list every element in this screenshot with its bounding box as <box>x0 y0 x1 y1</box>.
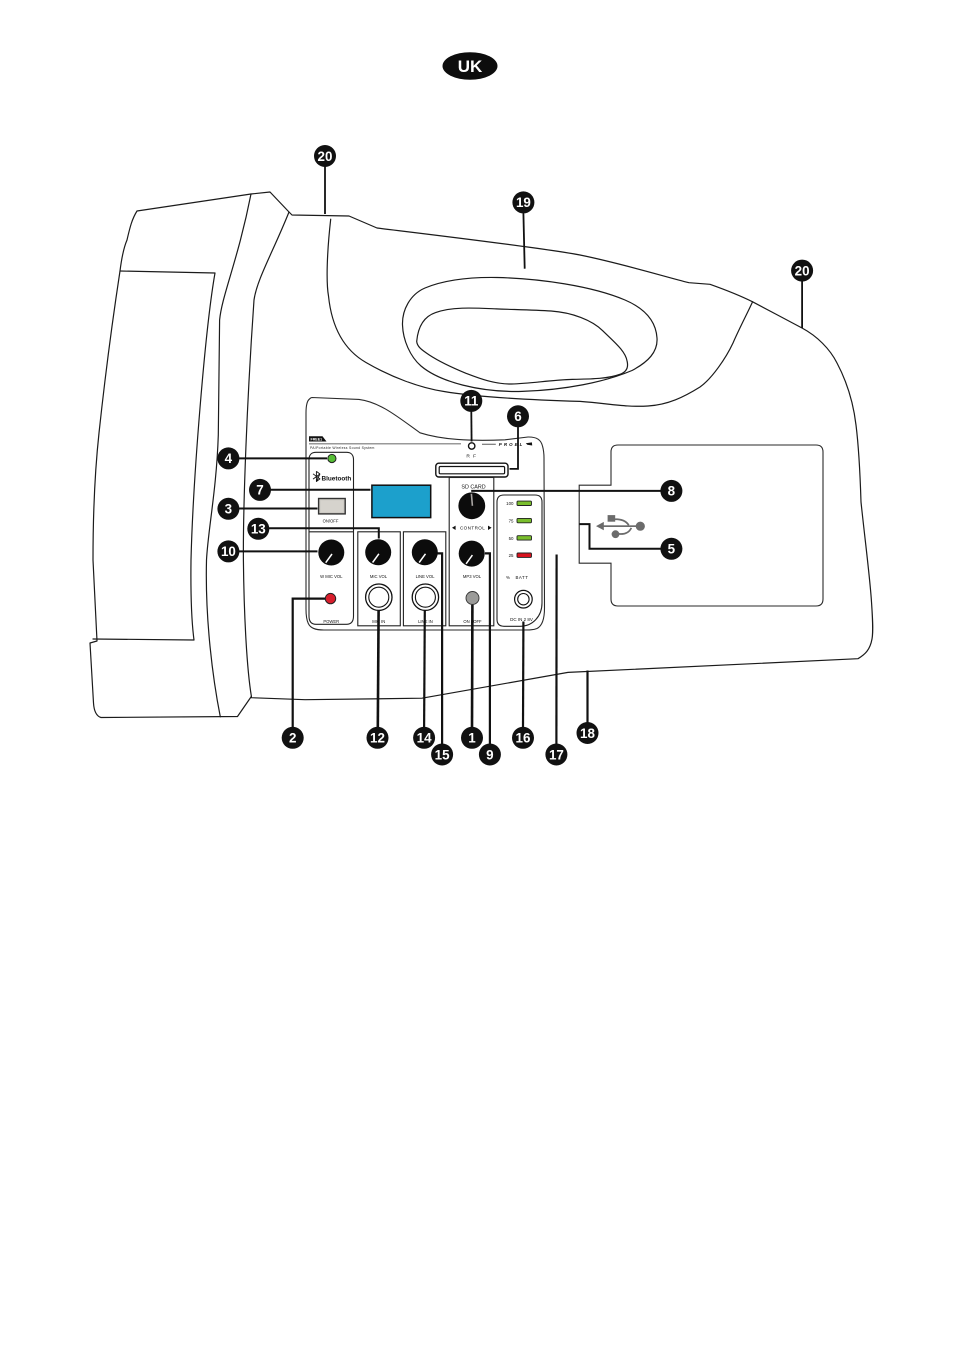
svg-text:14: 14 <box>417 731 432 746</box>
svg-text:20: 20 <box>318 149 333 164</box>
svg-text:CONTROL: CONTROL <box>460 526 485 531</box>
svg-text:3: 3 <box>225 502 232 517</box>
svg-text:8: 8 <box>668 484 676 499</box>
svg-text:75: 75 <box>509 519 514 524</box>
svg-text:9: 9 <box>486 747 493 762</box>
svg-text:W MIC VOL: W MIC VOL <box>320 574 343 579</box>
svg-text:ON/OFF: ON/OFF <box>323 518 339 523</box>
svg-text:15: 15 <box>435 747 450 762</box>
svg-text:50: 50 <box>509 536 514 541</box>
svg-text:5: 5 <box>668 542 676 557</box>
svg-text:SD CARD: SD CARD <box>461 484 485 490</box>
svg-text:PA/Portable Wireless Sound Sys: PA/Portable Wireless Sound System <box>310 446 375 450</box>
svg-text:6: 6 <box>514 409 521 424</box>
svg-text:19: 19 <box>516 195 531 210</box>
svg-text:16: 16 <box>516 731 531 746</box>
svg-text:4: 4 <box>225 451 233 466</box>
svg-text:MIC VOL: MIC VOL <box>370 574 388 579</box>
svg-text:12: 12 <box>370 731 385 746</box>
svg-text:BATT: BATT <box>516 575 529 580</box>
svg-text:13: 13 <box>251 522 266 537</box>
svg-text:7: 7 <box>256 483 263 498</box>
svg-text:FREE1: FREE1 <box>311 437 323 441</box>
svg-text:PROEL: PROEL <box>499 442 525 447</box>
svg-text:18: 18 <box>580 726 595 741</box>
svg-text:Bluetooth: Bluetooth <box>322 475 352 482</box>
svg-text:UK: UK <box>458 57 483 76</box>
svg-text:100: 100 <box>506 501 514 506</box>
svg-text:LINE VOL: LINE VOL <box>416 574 436 579</box>
svg-text:11: 11 <box>464 394 479 409</box>
svg-text:1: 1 <box>468 731 476 746</box>
svg-text:MP3 VOL: MP3 VOL <box>463 574 482 579</box>
svg-text:20: 20 <box>795 263 810 278</box>
svg-text:POWER: POWER <box>323 619 339 624</box>
svg-text:10: 10 <box>221 544 236 559</box>
svg-text:%: % <box>506 575 510 580</box>
svg-text:DC IN 2 8V: DC IN 2 8V <box>510 617 533 622</box>
svg-text:R F: R F <box>466 454 477 460</box>
svg-text:2: 2 <box>289 731 296 746</box>
svg-text:25: 25 <box>509 553 514 558</box>
svg-text:17: 17 <box>549 747 564 762</box>
